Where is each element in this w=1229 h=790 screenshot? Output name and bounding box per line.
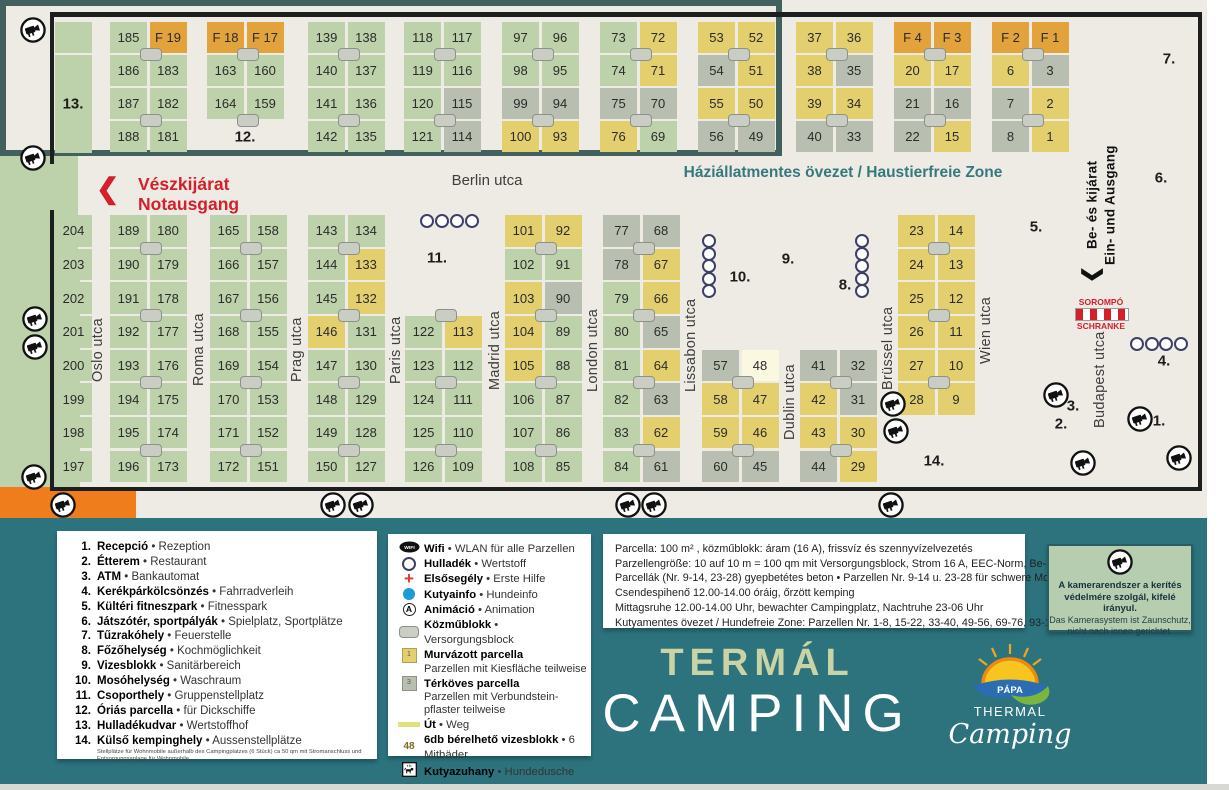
symbol-legend-item: +Elsősegély • Erste Hilfe <box>394 571 587 586</box>
legend-item-de: • Kochmöglichkeit <box>167 644 261 659</box>
utility-block-icon <box>826 114 848 127</box>
utility-block-icon <box>435 376 457 389</box>
camera-icon <box>615 492 641 518</box>
legend-item-number: 12. <box>67 704 91 719</box>
parcel-200: 200 <box>55 350 92 382</box>
symbol-label-hu: Elsősegély <box>424 573 483 585</box>
legend-item-number: 11. <box>67 689 91 704</box>
brand-title-termal: TERMÁL <box>590 642 925 684</box>
waste-circle-icon <box>420 214 434 228</box>
legend-item-de: • Fitnesspark <box>197 600 267 615</box>
utility-block-icon <box>532 114 554 127</box>
brand-title-camping: CAMPING <box>590 684 925 744</box>
utility-block-icon <box>830 376 852 389</box>
map-frame-left-a <box>50 12 54 164</box>
barrier-label-hu: SOROMPÓ <box>1074 297 1128 307</box>
barrier-icon <box>1075 308 1129 321</box>
symbol-label-hu: Út <box>424 719 436 731</box>
area-label-7: 7. <box>1163 51 1176 68</box>
camera-note-box: A kamerarendszer a kerítés védelmére szo… <box>1047 544 1193 632</box>
legend-item-de: • Bankautomat <box>121 570 199 585</box>
anim-icon: A <box>403 603 416 616</box>
papa-thermal-camping-logo: PÁPA THERMAL Camping <box>945 640 1075 768</box>
blob-icon <box>399 626 419 638</box>
camera-icon <box>1127 406 1153 432</box>
street-label-roma-utca: Roma utca <box>190 275 208 425</box>
legend-item-de: • Gruppenstellplatz <box>164 689 264 704</box>
waste-circle-icon <box>1130 337 1144 351</box>
symbol-legend-item: Hulladék • Wertstoff <box>394 556 587 571</box>
utility-block-icon <box>1022 48 1044 61</box>
symbol-label-hu: Animáció <box>424 604 475 616</box>
parcel-197: 197 <box>55 451 92 483</box>
camera-icon <box>20 17 46 43</box>
parcel-198: 198 <box>55 417 92 449</box>
parcel-202: 202 <box>55 282 92 314</box>
street-label-wien-utca: Wien utca <box>977 255 995 405</box>
symbol-label: Út • Weg <box>424 717 469 732</box>
legend-item-number: 5. <box>67 600 91 615</box>
symbol-icon-cell <box>394 626 424 638</box>
map-frame-top <box>50 12 1202 17</box>
dot-icon <box>403 588 415 600</box>
area-label-1: 1. <box>1153 413 1166 430</box>
logo-papa-text: PÁPA <box>997 685 1023 696</box>
parcel-199: 199 <box>55 383 92 415</box>
n48-icon: 48 <box>403 740 414 754</box>
legend-item: 12.Óriás parcella • für Dickschiffe <box>67 704 369 719</box>
symbol-legend-item: 3Térköves parcella <box>394 676 587 691</box>
symbol-label-hu: Murvázott parcella <box>424 649 523 661</box>
symbol-icon-cell: + <box>394 573 424 585</box>
legend-item: 7.Tűzrakóhely • Feuerstelle <box>67 629 369 644</box>
legend-item-number: 14. <box>67 734 91 749</box>
utility-block-icon <box>140 309 162 322</box>
camera-icon <box>883 418 909 444</box>
legend-item-de: • Aussenstellplätze <box>202 734 301 749</box>
utility-block-icon <box>338 444 360 457</box>
symbol-label-de: • Erste Hilfe <box>483 573 545 585</box>
barrier-label-de: SCHRANKE <box>1074 321 1128 331</box>
right-margin <box>1207 0 1229 790</box>
legend-item: 9.Vizesblokk • Sanitärbereich <box>67 659 369 674</box>
symbol-legend-item: Út • Weg <box>394 717 587 732</box>
utility-block-icon <box>630 114 652 127</box>
camera-icon <box>878 492 904 518</box>
legend-item: 4.Kerékpárkölcsönzés • Fahrradverleih <box>67 585 369 600</box>
legend-item-de: • Rezeption <box>148 540 210 555</box>
utility-block-icon <box>338 376 360 389</box>
symbol-icon-cell: A <box>394 603 424 616</box>
utility-block-icon <box>338 309 360 322</box>
waste-circle-icon <box>1145 337 1159 351</box>
utility-block-icon <box>535 242 557 255</box>
utility-block-icon <box>928 376 950 389</box>
utility-block-icon <box>924 48 946 61</box>
map-frame-right <box>1198 12 1202 491</box>
legend-item: 2.Étterem • Restaurant <box>67 555 369 570</box>
waste-circle-icon <box>855 234 869 248</box>
waste-circle-icon <box>855 284 869 298</box>
dog-icon <box>402 762 417 780</box>
utility-block-icon <box>928 242 950 255</box>
parcel- <box>55 22 92 53</box>
utility-block-icon <box>240 376 262 389</box>
camera-note-de2: nicht nach innen gerichtet. <box>1049 626 1191 637</box>
symbol-label-de: • WLAN für alle Parzellen <box>445 543 575 555</box>
utility-block-icon <box>237 48 259 61</box>
utility-block-icon <box>924 114 946 127</box>
cross-icon: + <box>404 573 414 585</box>
area-label-5: 5. <box>1030 219 1043 236</box>
area-label-8: 8. <box>839 277 852 294</box>
legend-item: 6.Játszótér, sportpályák • Spielplatz, S… <box>67 615 369 630</box>
sq3-icon: 3 <box>402 676 417 691</box>
info-line: Kutyamentes övezet / Hundefreie Zone: Pa… <box>615 616 1025 631</box>
camera-icon <box>1166 445 1192 471</box>
legend-item-hu: Hulladékudvar <box>97 719 176 734</box>
camera-icon <box>1070 450 1096 476</box>
legend-item-hu: ATM <box>97 570 121 585</box>
area-label-13: 13. <box>63 96 84 113</box>
emergency-exit-arrow-icon: ❮ <box>96 172 119 205</box>
legend-item-number: 4. <box>67 585 91 600</box>
utility-block-icon <box>140 48 162 61</box>
camera-icon <box>20 145 46 171</box>
camera-icon <box>1107 549 1133 580</box>
utility-block-icon <box>732 444 754 457</box>
symbol-label-hu: Térköves parcella <box>424 678 519 690</box>
area-label-10: 10. <box>730 269 751 286</box>
legend-item-hu: Kültéri fitneszpark <box>97 600 197 615</box>
emergency-exit-label-de: Notausgang <box>138 194 239 215</box>
street-label-lissabon-utca: Lissabon utca <box>682 270 700 420</box>
symbol-icon-cell <box>394 722 424 727</box>
legend-item-de: • für Dickschiffe <box>173 704 255 719</box>
legend-item-hu: Csoporthely <box>97 689 164 704</box>
symbol-label-extra: Parzellen mit Kiesfläche teilweise <box>424 663 587 676</box>
area-label-14: 14. <box>924 453 945 470</box>
map-frame-left-b <box>50 210 54 491</box>
utility-block-icon <box>830 444 852 457</box>
symbol-label-de: • Wertstoff <box>471 558 526 570</box>
camera-icon <box>320 492 346 518</box>
symbol-label: 6db bérelhető vizesblokk • 6 Mitbäder <box>424 732 587 762</box>
legend-item-hu: Recepció <box>97 540 148 555</box>
symbol-label-hu: 6db bérelhető vizesblokk <box>424 734 558 746</box>
legend-item-hu: Óriás parcella <box>97 704 173 719</box>
waste-circle-icon <box>702 284 716 298</box>
legend-item-number: 1. <box>67 540 91 555</box>
legend-item-hu: Játszótér, sportpályák <box>97 615 218 630</box>
utility-block-icon <box>630 48 652 61</box>
legend-item-de: • Waschraum <box>170 674 241 689</box>
legend-footnote: Entsorgungsanlage für Wohnmobile <box>97 756 369 764</box>
camp-map-poster: Berlin utca Háziállatmentes övezet / Hau… <box>0 0 1229 790</box>
legend-item-de: • Fahrradverleih <box>209 585 294 600</box>
brand-wordmark: TERMÁL CAMPING <box>590 642 925 744</box>
symbol-label-hu: Kutyazuhany <box>424 766 494 778</box>
utility-block-icon <box>535 376 557 389</box>
utility-block-icon <box>240 309 262 322</box>
legend-item: 14.Külső kempinghely • Aussenstellplätze <box>67 734 369 749</box>
parcel-204: 204 <box>55 215 92 247</box>
waste-circle-icon <box>1159 337 1173 351</box>
legend-item-hu: Külső kempinghely <box>97 734 202 749</box>
legend-item-hu: Mosóhelység <box>97 674 170 689</box>
symbol-label: Wifi • WLAN für alle Parzellen <box>424 541 575 556</box>
utility-block-icon <box>338 48 360 61</box>
symbol-legend-item: Közműblokk • Versorgungsblock <box>394 617 587 647</box>
camera-icon <box>1043 382 1069 408</box>
pet-free-zone-label: Háziállatmentes övezet / Haustierfreie Z… <box>678 164 1008 182</box>
utility-block-icon <box>140 242 162 255</box>
utility-block-icon <box>140 376 162 389</box>
entrance-exit-label-hu: Be- és kijárat <box>1083 140 1101 270</box>
symbol-label: Animáció • Animation <box>424 602 535 617</box>
waste-circle-icon <box>702 234 716 248</box>
logo-camping-text: Camping <box>949 719 1072 750</box>
legend-numbered-box: 1.Recepció • Rezeption2.Étterem • Restau… <box>57 531 377 759</box>
utility-block-icon <box>435 444 457 457</box>
legend-item-hu: Kerékpárkölcsönzés <box>97 585 209 600</box>
legend-item-hu: Vizesblokk <box>97 659 156 674</box>
info-text-box: Parcella: 100 m² , közműblokk: áram (16 … <box>603 534 1025 628</box>
symbol-icon-cell: 48 <box>394 740 424 754</box>
camera-icon <box>641 492 667 518</box>
symbol-label: Térköves parcella <box>424 676 519 691</box>
camera-icon <box>50 492 76 518</box>
legend-item: 1.Recepció • Rezeption <box>67 540 369 555</box>
utility-block-icon <box>434 114 456 127</box>
legend-symbols-box: WIFIWifi • WLAN für alle ParzellenHullad… <box>388 534 591 756</box>
camera-note-de: Das Kamerasystem ist Zaunschutz, <box>1049 615 1191 626</box>
camera-icon <box>348 492 374 518</box>
symbol-label-hu: Wifi <box>424 543 445 555</box>
symbol-icon-cell: 3 <box>394 676 424 691</box>
info-line: Parcellák (Nr. 9-14, 23-28) gyepbetétes … <box>615 571 1025 586</box>
legend-item: 5.Kültéri fitneszpark • Fitnesspark <box>67 600 369 615</box>
utility-block-icon <box>928 309 950 322</box>
legend-item-number: 6. <box>67 615 91 630</box>
legend-item-de: • Spielplatz, Sportplätze <box>218 615 343 630</box>
utility-block-icon <box>140 114 162 127</box>
symbol-label-de: • Hundeinfo <box>476 589 538 601</box>
waste-circle-icon <box>1174 337 1188 351</box>
entrance-exit-label-de: Ein- und Ausgang <box>1101 140 1119 270</box>
legend-footnote: Stellplätze für Wohnmobile außerhalb des… <box>97 749 369 757</box>
emergency-exit-label-hu: Vészkijárat <box>138 174 229 195</box>
sq1-icon: 1 <box>402 648 417 663</box>
utility-block-icon <box>338 114 360 127</box>
legend-item: 13.Hulladékudvar • Wertstoffhof <box>67 719 369 734</box>
legend-item-hu: Étterem <box>97 555 140 570</box>
camera-icon <box>22 306 48 332</box>
entrance-arrow-icon: ❮ <box>1078 266 1103 284</box>
utility-block-icon <box>140 444 162 457</box>
symbol-icon-cell: 1 <box>394 648 424 663</box>
legend-item-number: 7. <box>67 629 91 644</box>
legend-item-hu: Főzőhelység <box>97 644 167 659</box>
legend-item-de: • Feuerstelle <box>164 629 231 644</box>
camera-icon <box>22 334 48 360</box>
symbol-label-extra: pflaster teilweise <box>424 704 587 717</box>
symbol-legend-item: Kutyainfo • Hundeinfo <box>394 587 587 602</box>
symbol-label: Murvázott parcella <box>424 647 523 662</box>
symbol-label: Hulladék • Wertstoff <box>424 556 526 571</box>
symbol-legend-item: Kutyazuhany • Hundedusche <box>394 762 587 780</box>
utility-block-icon <box>535 309 557 322</box>
legend-item-number: 2. <box>67 555 91 570</box>
symbol-icon-cell <box>394 762 424 780</box>
utility-block-icon <box>240 242 262 255</box>
street-label-dublin-utca: Dublin utca <box>781 327 799 477</box>
symbol-label-extra: Parzellen mit Verbundstein- <box>424 691 587 704</box>
bottom-strip <box>0 784 1229 790</box>
camera-icon <box>21 464 47 490</box>
symbol-legend-item: 1Murvázott parcella <box>394 647 587 662</box>
area-label-4: 4. <box>1158 353 1171 370</box>
utility-block-icon <box>338 242 360 255</box>
symbol-label-de: • Weg <box>436 719 469 731</box>
legend-item-number: 10. <box>67 674 91 689</box>
info-line: Parcella: 100 m² , közműblokk: áram (16 … <box>615 542 1025 557</box>
area-label-6: 6. <box>1155 170 1168 187</box>
legend-item-de: • Wertstoffhof <box>176 719 248 734</box>
utility-block-icon <box>435 309 457 322</box>
svg-text:WIFI: WIFI <box>404 545 415 551</box>
logo-thermal-text: THERMAL <box>974 704 1047 719</box>
symbol-label-hu: Közműblokk <box>424 619 491 631</box>
legend-item-number: 9. <box>67 659 91 674</box>
symbol-label: Közműblokk • Versorgungsblock <box>424 617 587 647</box>
utility-block-icon <box>633 376 655 389</box>
utility-block-icon <box>826 48 848 61</box>
utility-block-icon <box>732 376 754 389</box>
waste-circle-icon <box>450 214 464 228</box>
utility-block-icon <box>633 444 655 457</box>
area-label-9: 9. <box>782 251 795 268</box>
symbol-label-hu: Hulladék <box>424 558 471 570</box>
legend-item: 11.Csoporthely • Gruppenstellplatz <box>67 689 369 704</box>
symbol-label: Elsősegély • Erste Hilfe <box>424 571 545 586</box>
street-label-london-utca: London utca <box>584 275 602 425</box>
legend-item: 10.Mosóhelység • Waschraum <box>67 674 369 689</box>
utility-block-icon <box>535 444 557 457</box>
area-label-11: 11. <box>427 250 447 267</box>
symbol-label: Kutyainfo • Hundeinfo <box>424 587 538 602</box>
symbol-legend-item: WIFIWifi • WLAN für alle Parzellen <box>394 541 587 556</box>
utility-block-icon <box>237 114 259 127</box>
camera-icon <box>880 391 906 417</box>
symbol-label-hu: Kutyainfo <box>424 589 476 601</box>
legend-item-number: 3. <box>67 570 91 585</box>
symbol-legend-item: AAnimáció • Animation <box>394 602 587 617</box>
legend-item: 3.ATM • Bankautomat <box>67 570 369 585</box>
info-line: Mittagsruhe 12.00-14.00 Uhr, bewachter C… <box>615 601 1025 616</box>
utility-block-icon <box>633 242 655 255</box>
utility-block-icon <box>633 309 655 322</box>
symbol-label: Kutyazuhany • Hundedusche <box>424 764 574 779</box>
symbol-icon-cell <box>394 588 424 600</box>
legend-item: 8.Főzőhelység • Kochmöglichkeit <box>67 644 369 659</box>
legend-item-number: 13. <box>67 719 91 734</box>
utility-block-icon <box>728 48 750 61</box>
symbol-label-de: • Animation <box>475 604 535 616</box>
legend-item-hu: Tűzrakóhely <box>97 629 164 644</box>
street-label-madrid-utca: Madrid utca <box>486 275 504 425</box>
symbol-legend-item: 486db bérelhető vizesblokk • 6 Mitbäder <box>394 732 587 762</box>
legend-item-de: • Restaurant <box>140 555 207 570</box>
symbol-icon-cell: WIFI <box>394 541 424 556</box>
street-label-paris-utca: Paris utca <box>387 275 405 425</box>
parcel-203: 203 <box>55 249 92 281</box>
utility-block-icon <box>240 444 262 457</box>
street-label-oslo-utca: Oslo utca <box>89 275 107 425</box>
utility-block-icon <box>434 48 456 61</box>
camera-note-hu2: védelmére szolgál, kifelé irányul. <box>1049 592 1191 615</box>
utility-block-icon <box>532 48 554 61</box>
legend-item-number: 8. <box>67 644 91 659</box>
area-label-12: 12. <box>235 129 256 146</box>
road-icon <box>398 722 420 727</box>
waste-circle-icon <box>855 259 869 273</box>
waste-circle-icon <box>702 259 716 273</box>
legend-item-de: • Sanitärbereich <box>156 659 241 674</box>
area-label-2: 2. <box>1055 416 1068 433</box>
camera-note-hu: A kamerarendszer a kerítés <box>1049 580 1191 592</box>
symbol-label-de: • Hundedusche <box>494 766 574 778</box>
info-line: Csendespihenő 12.00-14.00 óráig, őrzött … <box>615 586 1025 601</box>
utility-block-icon <box>1022 114 1044 127</box>
wifi-icon: WIFI <box>399 541 420 556</box>
map-frame-bottom <box>50 487 1202 492</box>
parcel-201: 201 <box>55 316 92 348</box>
berlin-street-label: Berlin utca <box>417 172 557 189</box>
street-label-prag-utca: Prag utca <box>288 275 306 425</box>
waste-circle-icon <box>435 214 449 228</box>
waste-circle-icon <box>465 214 479 228</box>
utility-block-icon <box>728 114 750 127</box>
info-line: Parzellengröße: 10 auf 10 m = 100 qm mit… <box>615 557 1025 572</box>
